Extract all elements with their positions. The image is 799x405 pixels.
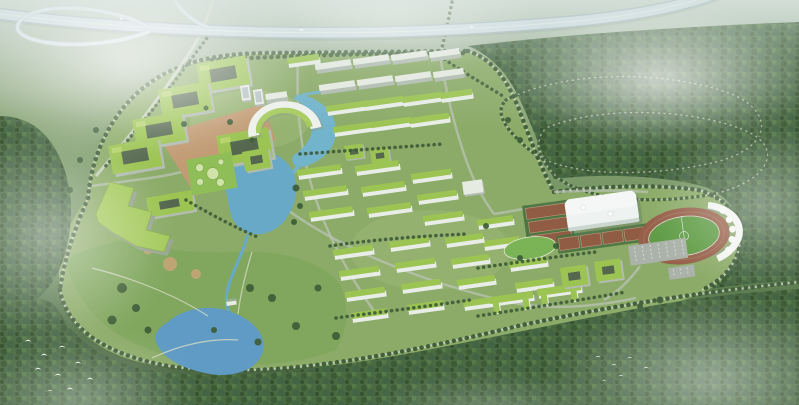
skylight (608, 211, 614, 217)
highway-deck (0, 0, 720, 33)
scene-canvas (0, 0, 799, 405)
aerial-campus-rendering (0, 0, 799, 405)
skylight (580, 205, 586, 211)
